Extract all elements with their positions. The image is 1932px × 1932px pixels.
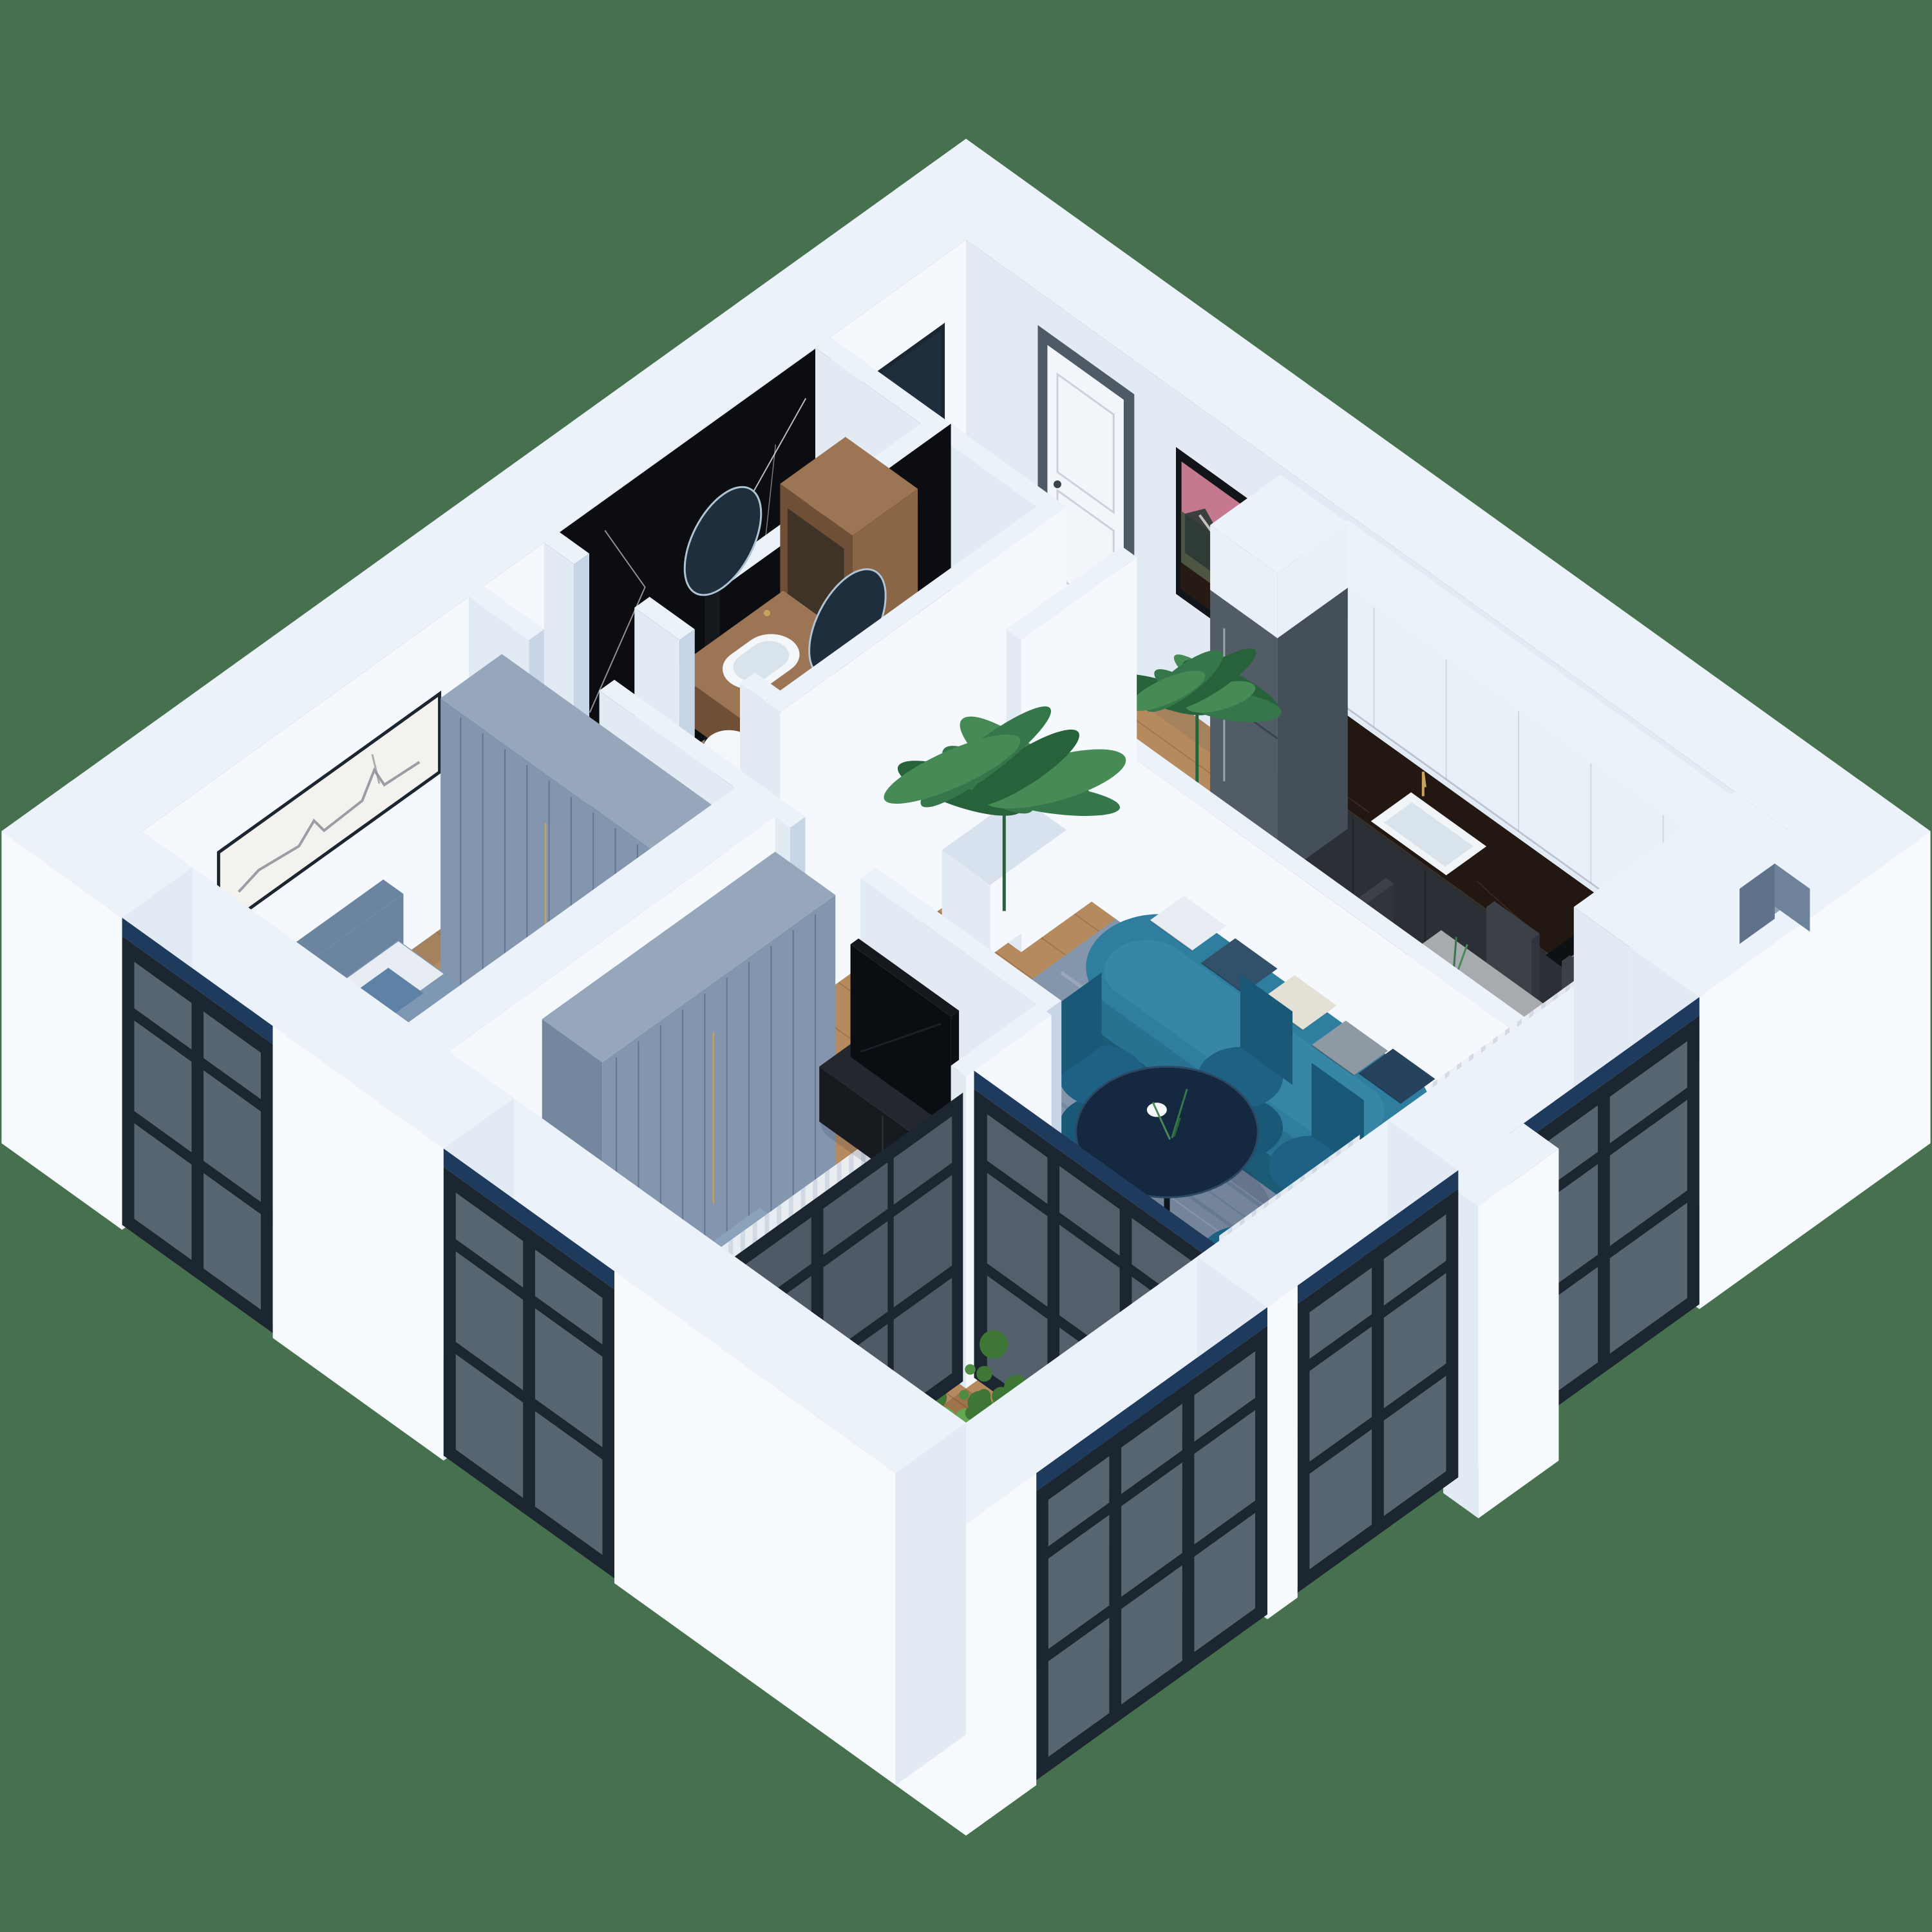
- apartment-3d-floorplan: [0, 0, 1932, 1932]
- floorplan-render-canvas: [0, 0, 1932, 1932]
- se-outer-bump: [1443, 1123, 1558, 1518]
